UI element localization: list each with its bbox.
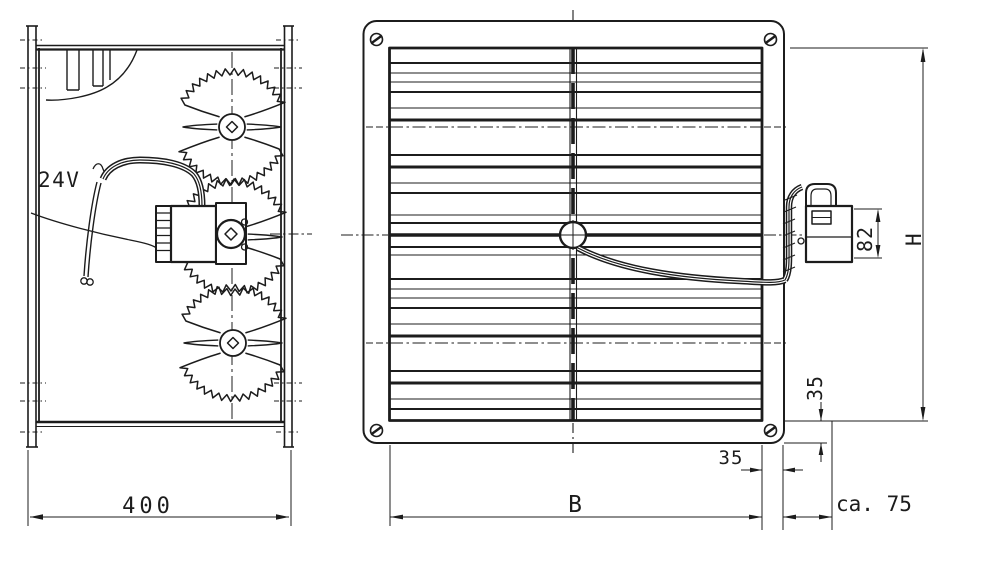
screw-icon bbox=[765, 34, 777, 46]
front-actuator-motor bbox=[798, 184, 852, 262]
damper-drawing: 24V 400 B 35 ca. 75 35 82 H bbox=[0, 0, 1000, 579]
front-view bbox=[341, 10, 852, 453]
side-left-flange bbox=[20, 26, 46, 447]
dim-400-label: 400 bbox=[122, 494, 174, 519]
mounting-screw bbox=[798, 238, 804, 244]
voltage-label: 24V bbox=[38, 168, 80, 192]
dim-82-label: 82 bbox=[853, 226, 877, 252]
motor-coupling-hub bbox=[217, 220, 245, 248]
screw-icon bbox=[371, 425, 383, 437]
motor-body bbox=[171, 206, 216, 262]
sector-gear-bottom bbox=[180, 285, 286, 402]
dim-B-label: B bbox=[568, 492, 582, 518]
screw-icon bbox=[765, 425, 777, 437]
motor-terminal-block bbox=[156, 206, 171, 262]
motor-housing bbox=[806, 206, 852, 262]
dim-H-label: H bbox=[902, 233, 926, 246]
side-actuator-motor bbox=[156, 203, 248, 264]
technical-drawing-sheet: 24V 400 B 35 ca. 75 35 82 H bbox=[0, 0, 1000, 579]
dim-35-flange-label: 35 bbox=[803, 375, 827, 401]
dim-ca75-label: ca. 75 bbox=[836, 492, 912, 516]
dim-35-frame-label: 35 bbox=[719, 447, 744, 469]
dim-35-flange bbox=[784, 402, 827, 462]
side-view bbox=[20, 26, 312, 447]
supply-wire-pair bbox=[84, 182, 101, 277]
wire-lug bbox=[81, 278, 87, 284]
side-bracket-detail bbox=[46, 50, 137, 100]
screw-icon bbox=[371, 34, 383, 46]
wire-lug bbox=[87, 279, 93, 285]
rod-hub bbox=[557, 220, 589, 250]
dim-ca75 bbox=[783, 421, 832, 530]
